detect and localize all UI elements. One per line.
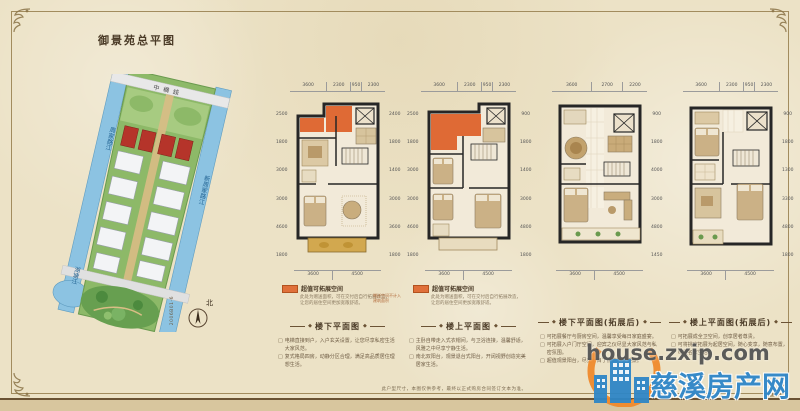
dims-right-4: 9001800 13003300 48001800 (782, 112, 792, 258)
list-item: □复式格局四房，动静分区合理，满足高品质居住理想生活。 (278, 353, 397, 369)
dims-top-1: 3600 2300 950 2300 (290, 82, 385, 92)
page-title: 御景苑总平图 (98, 32, 176, 48)
plan-title-3: ◆ 楼下平面图(拓展后) ◆ (538, 314, 661, 330)
drawing-code: 2006B01-6 (170, 296, 175, 325)
elevator-shaft (487, 108, 505, 124)
floor-plan-column-3: 3600 2700 2200 9001800 40003000 48001450 (538, 82, 661, 369)
dims-right-2: 9001800 14003000 48001800 (520, 112, 530, 258)
bed (433, 158, 453, 184)
list-item: □主卧自带走入式衣帽间，与卫浴连接，温馨舒适，风雅之中尽享宁静生活。 (409, 337, 528, 353)
table (701, 196, 713, 206)
corner-ornament-top-right (768, 6, 794, 32)
watermark-site-name: 慈溪房产网 (650, 365, 790, 405)
bed (475, 194, 501, 228)
dims-left-1: 25001800 30003000 46001800 (276, 112, 286, 258)
elevator-shaft (614, 114, 634, 132)
list-item: □南北双阳台，观景退台式阳台，开阔视野创造完美居家生活。 (409, 353, 528, 369)
compass-icon (184, 300, 224, 332)
legend-color-swatch (282, 285, 298, 293)
dims-bottom-2: 3600 4500 (425, 270, 512, 280)
dims-left-2: 25001800 30003000 46001800 (407, 112, 417, 258)
floor-plans-row: 3600 2300 950 2300 25001800 30003000 460… (276, 82, 792, 369)
plan-title-2: ◆ 楼上平面图 ◆ (407, 318, 530, 334)
building-icon (594, 359, 649, 403)
watermark-url: house.zxip.com (586, 341, 770, 365)
expand-zone (326, 106, 352, 132)
floor-plan-drawing-1 (286, 92, 390, 270)
balcony (562, 228, 640, 240)
gift-space-note: 赠送空间不计入建筑面积 (373, 293, 403, 303)
dims-top-4: 3600 2300 950 2300 (683, 82, 778, 92)
bed (433, 194, 453, 220)
dims-top-2: 3600 2300 950 2300 (421, 82, 516, 92)
plan-notes-1: □电梯直接到户，入户玄关设置，让您尽享私密生活大家风范。 □复式格局四房，动静分… (276, 337, 399, 369)
corner-ornament-bottom-left (6, 373, 32, 399)
balcony (439, 238, 497, 250)
balcony (693, 230, 723, 244)
kitchen (564, 110, 586, 124)
plan-title-1: ◆ 楼下平面图 ◆ (276, 318, 399, 334)
dining-table (565, 137, 587, 159)
floor-plan-drawing-4 (679, 92, 783, 270)
plan-notes-2: □主卧自带走入式衣帽间，与卫浴连接，温馨舒适，风雅之中尽享宁静生活。 □南北双阳… (407, 337, 530, 369)
stairs (733, 150, 759, 166)
bed (304, 196, 326, 226)
watermark: house.zxip.com 慈溪房产网 (558, 331, 800, 407)
dims-bottom-1: 3600 4500 (294, 270, 381, 280)
site-plan: 中横线 周家路江 新周家路江 湖塘江 2006B01-6 北 (50, 74, 242, 332)
list-item: □电梯直接到户，入户玄关设置，让您尽享私密生活大家风范。 (278, 337, 397, 353)
floor-plan-drawing-2 (417, 92, 521, 270)
legend-2: 超值可拓展空间 此处为赠送面积，可在交付后自行拓展改造， 让您的居住空间更加宽敞… (407, 280, 530, 318)
elevator-shaft (356, 108, 374, 124)
stairs (604, 162, 630, 176)
dims-right-3: 9001800 40003000 48001450 (651, 112, 661, 258)
dims-right-1: 24001800 14003000 36001800 (389, 112, 399, 258)
bed (564, 188, 588, 222)
floor-plan-column-2: 3600 2300 950 2300 25001800 30003000 460… (407, 82, 530, 369)
north-compass: 北 (184, 300, 224, 332)
dims-bottom-4: 3600 4500 (687, 270, 774, 280)
legend-color-swatch (413, 285, 429, 293)
site-plan-map: 中横线 周家路江 新周家路江 湖塘江 (50, 74, 242, 332)
dims-top-3: 3600 2700 2200 (552, 82, 647, 92)
dining-table (308, 146, 322, 158)
plan-title-4: ◆ 楼上平面图(拓展后) ◆ (669, 314, 792, 330)
floor-plan-column-1: 3600 2300 950 2300 25001800 30003000 460… (276, 82, 399, 369)
floor-plan-drawing-3 (548, 92, 652, 270)
sofa (343, 201, 361, 219)
dims-bottom-3: 3600 4500 (556, 270, 643, 280)
north-label: 北 (206, 298, 213, 308)
corner-ornament-top-left (6, 6, 32, 32)
stairs (471, 144, 497, 160)
bed (695, 128, 719, 156)
stairs (342, 148, 368, 164)
expand-zone (300, 118, 324, 132)
bed (737, 184, 763, 220)
elevator-shaft (747, 112, 767, 130)
balcony (308, 238, 366, 252)
floor-plan-column-4: 3600 2300 950 2300 9001800 13003300 4800… (669, 82, 792, 369)
